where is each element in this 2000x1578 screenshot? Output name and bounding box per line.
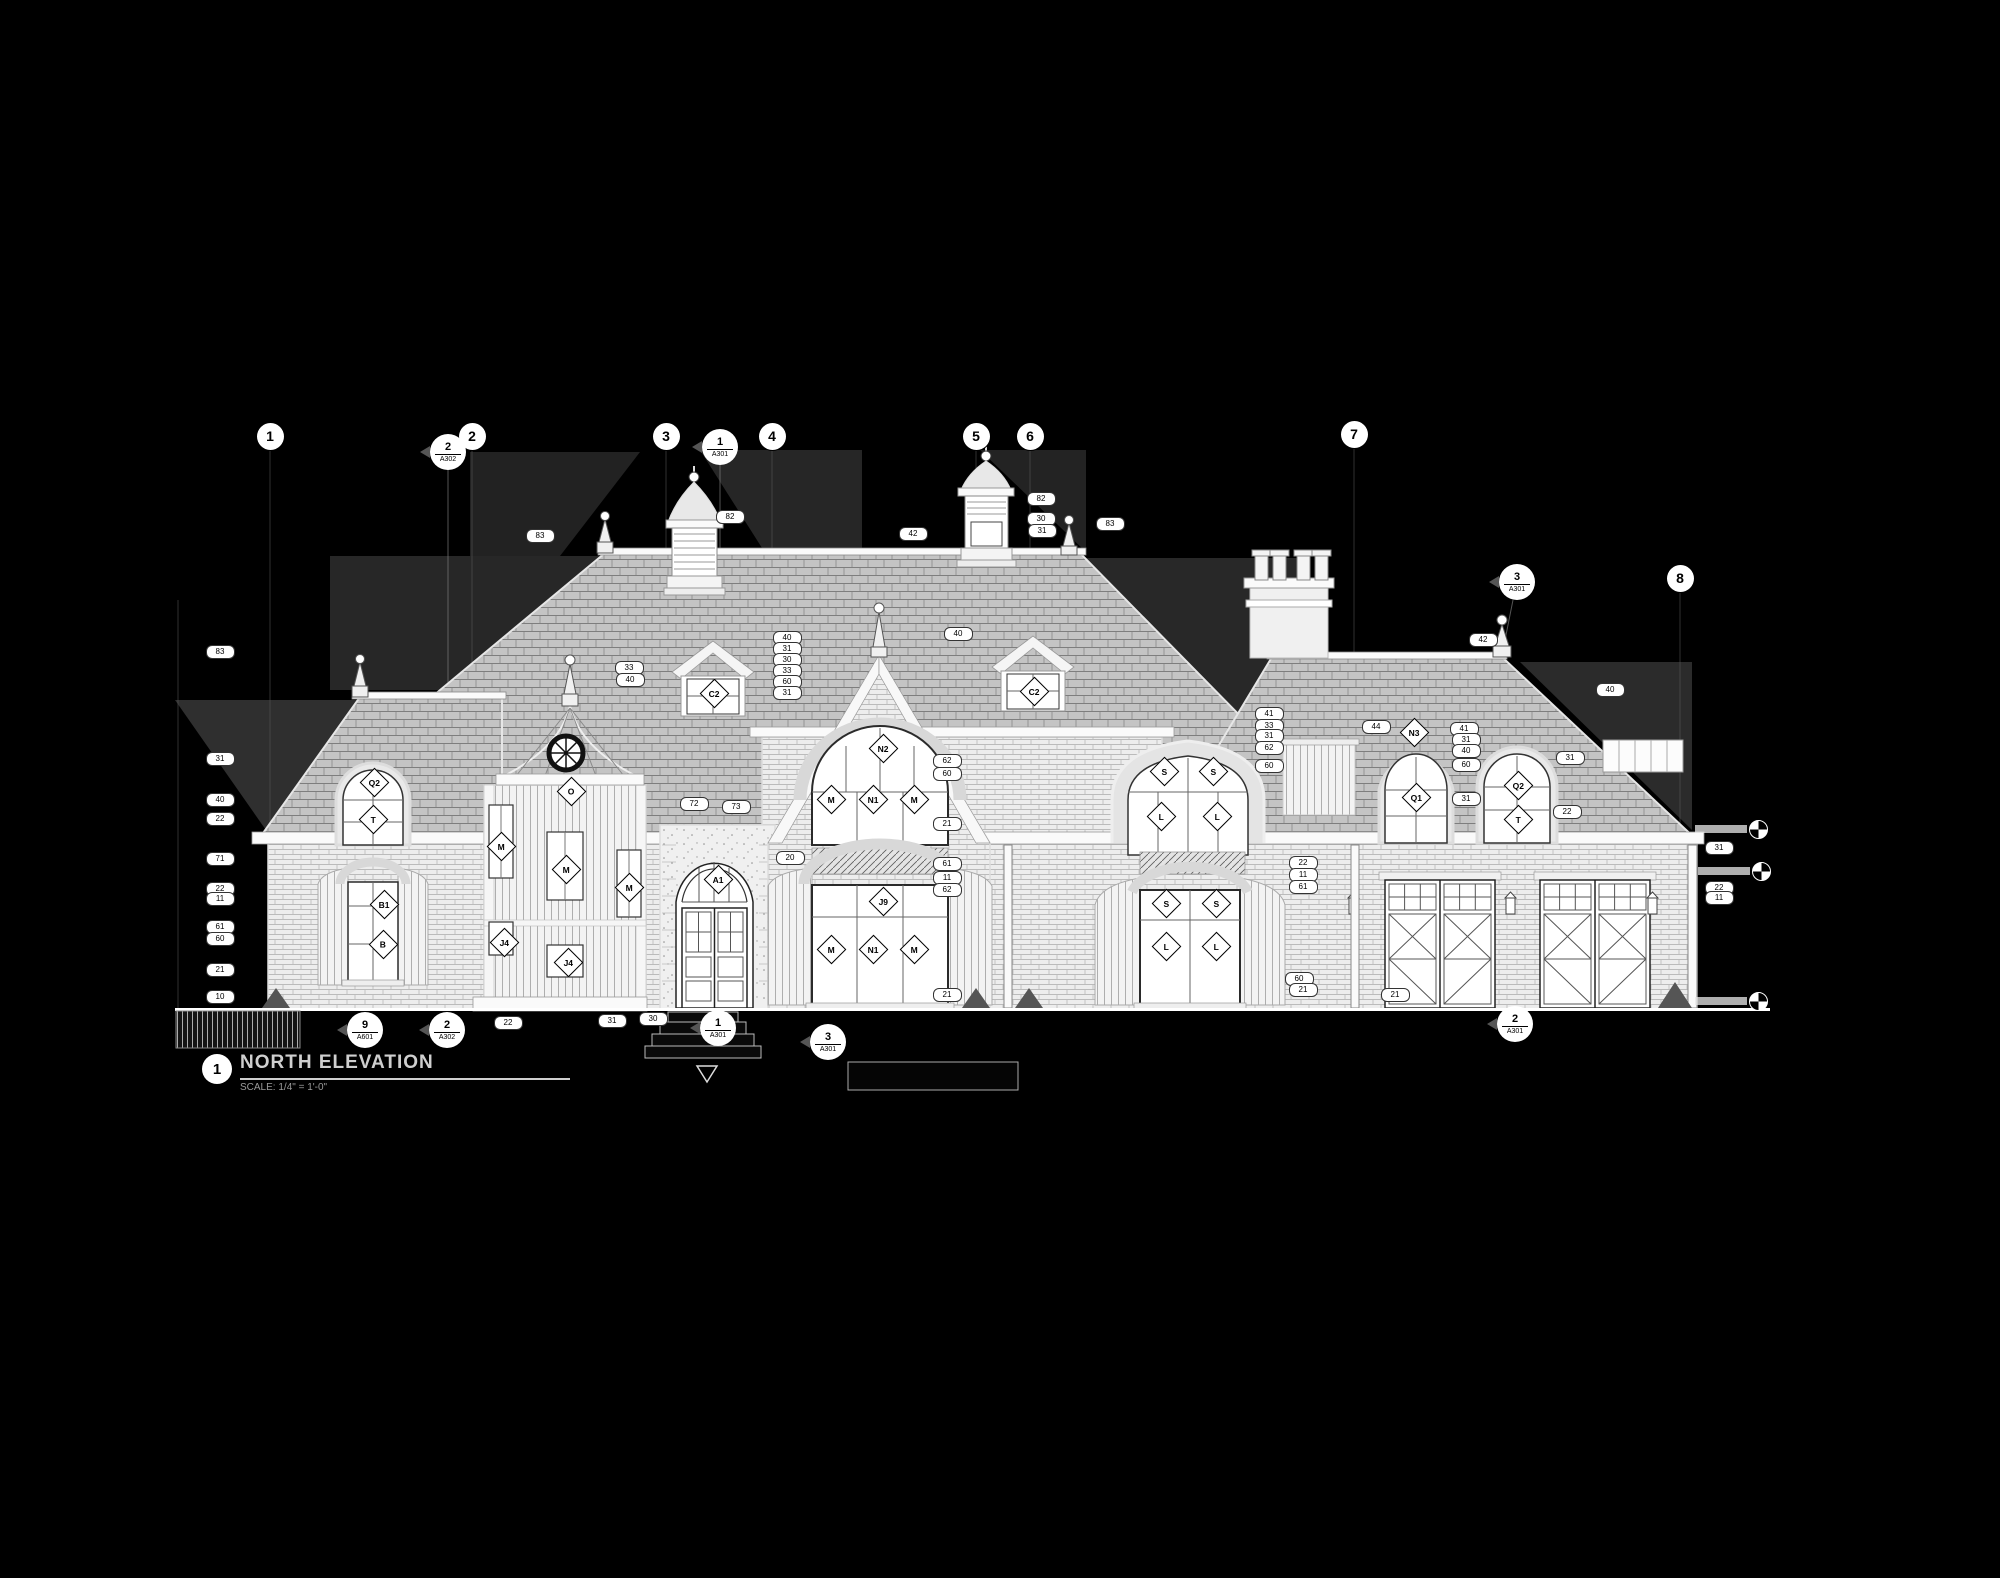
arched-dormer-right-center [1112, 741, 1264, 874]
center-block-fascia [750, 727, 1174, 737]
masked-note-box [848, 1062, 1018, 1090]
elevation-drawing [0, 0, 2000, 1578]
title-underline [240, 1078, 570, 1080]
view-title: NORTH ELEVATION [240, 1052, 434, 1074]
clerestory-band [1603, 740, 1683, 772]
view-number-bubble: 1 [202, 1054, 232, 1084]
entry-steps [645, 1012, 761, 1058]
benchmark-triangle [697, 1066, 717, 1082]
window-q1 [1379, 754, 1453, 843]
roof-siding-panel [1283, 743, 1355, 815]
left-ridge-cap [352, 692, 506, 699]
view-scale: SCALE: 1/4" = 1'-0" [240, 1082, 327, 1093]
window-q2t-right [1477, 747, 1557, 843]
main-ridge-cap [598, 548, 1086, 555]
cupola-left [664, 466, 725, 595]
entry [660, 825, 775, 1010]
window-q2t-left [336, 763, 410, 845]
foundation-hatch [176, 1011, 300, 1048]
elevation-sheet: 123456782A3021A3013A3019A6012A3021A3013A… [0, 0, 2000, 1578]
